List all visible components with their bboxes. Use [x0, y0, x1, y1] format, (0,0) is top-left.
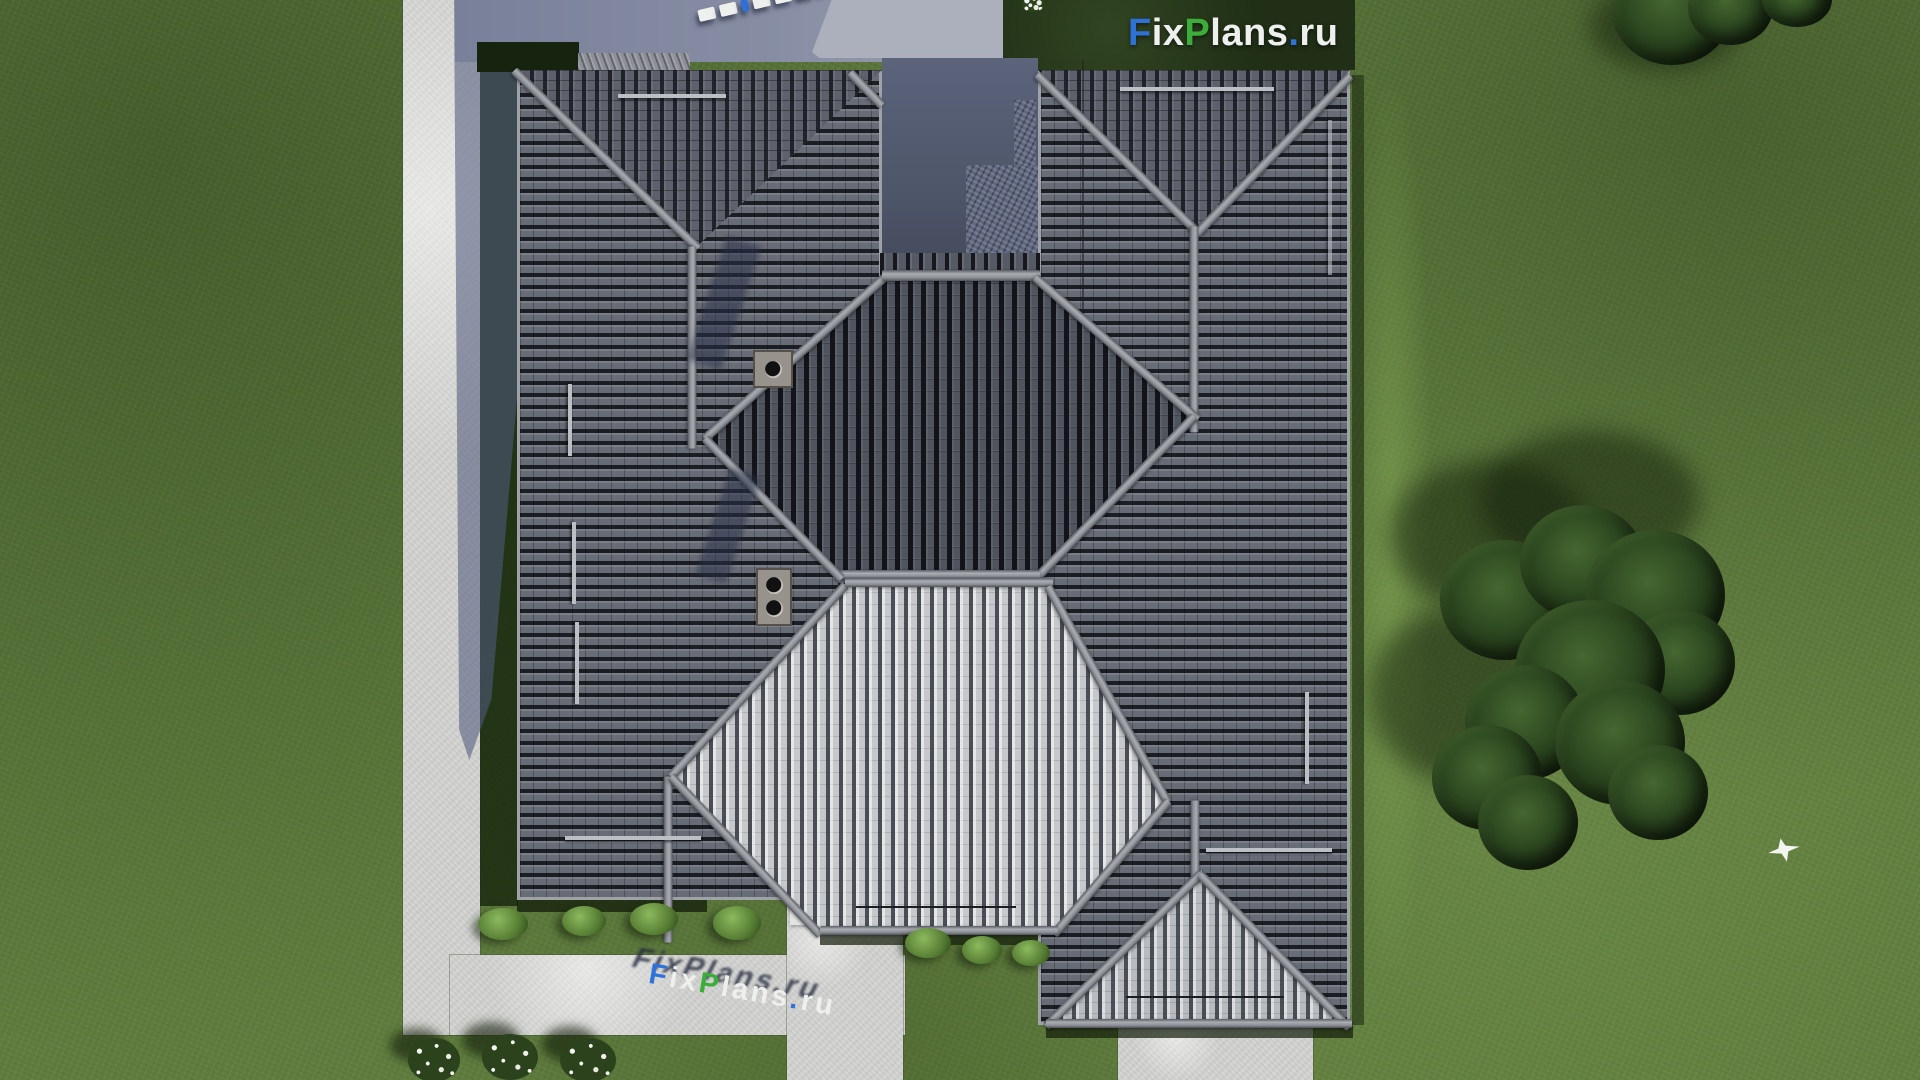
aerial-render-scene: FixPlans.ru FixPlans.ru FixPlans.ru [0, 0, 1920, 1080]
snow-guard [572, 522, 576, 604]
stone-chimney-block [966, 165, 1038, 257]
eave-shadow [517, 898, 707, 912]
snow-guard [1206, 848, 1332, 852]
hedge [477, 42, 579, 72]
logo-letter: l [1210, 12, 1221, 54]
snow-guard [568, 384, 572, 456]
fixplans-logo: FixPlans.ru [1128, 12, 1338, 55]
chimney [753, 350, 793, 388]
eave-cap [1046, 1019, 1352, 1028]
snow-guard [575, 622, 579, 704]
snow-guard [1305, 692, 1309, 784]
logo-letter: P [1184, 12, 1210, 54]
watermark-block [740, 0, 750, 12]
ridge-crest [882, 270, 1040, 281]
logo-letter: s [1267, 12, 1289, 54]
lightning-rod-wire [1082, 61, 1084, 316]
bush [713, 906, 761, 940]
flower-bush [482, 1034, 538, 1080]
chimney-vent [765, 361, 782, 378]
ridge [845, 578, 1053, 587]
bush [478, 908, 528, 940]
logo-letter: r [1299, 12, 1314, 54]
chimney [756, 568, 792, 626]
logo-letter: i [1152, 12, 1163, 54]
snow-guard [565, 836, 701, 840]
flower-bush [408, 1038, 460, 1080]
gutter-line [1328, 120, 1332, 275]
logo-letter: u [1315, 12, 1339, 54]
roof-cable [856, 906, 1016, 908]
roof-cable [1126, 996, 1284, 998]
bush [1012, 940, 1050, 966]
logo-letter: n [1243, 12, 1267, 54]
sunlit-terrace-wedge [812, 0, 1008, 58]
snow-guard [618, 94, 726, 98]
tree [1608, 745, 1708, 840]
logo-letter: a [1221, 12, 1243, 54]
logo-letter: . [1288, 12, 1299, 54]
logo-letter: F [1128, 12, 1152, 54]
chimney-vent [766, 600, 783, 617]
eave-shadow [1352, 75, 1364, 1025]
bush [562, 906, 606, 936]
flower-bush [560, 1038, 616, 1080]
chimney-vent [766, 577, 783, 594]
stone-chimney-block [1014, 100, 1036, 166]
tree [1478, 775, 1578, 870]
bush [630, 903, 678, 935]
bush [905, 928, 951, 958]
snow-guard [1120, 87, 1274, 91]
bush [962, 936, 1002, 964]
logo-letter: x [1163, 12, 1185, 54]
ridge [1190, 227, 1199, 433]
